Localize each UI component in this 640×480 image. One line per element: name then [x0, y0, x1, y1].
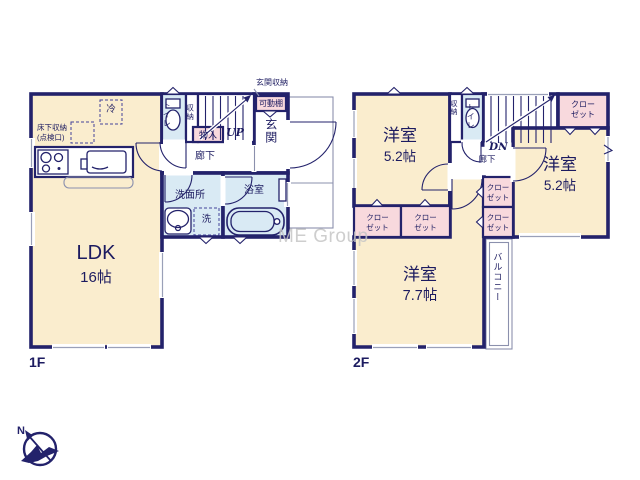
- floor-plan: N 玄関収納 LDK 16帖 冷 床下収納 (点検口) トイレ 収納 物入 UP…: [0, 0, 640, 480]
- label-storage-2f: 収納: [449, 100, 457, 136]
- label-underfloor: 床下収納 (点検口): [37, 123, 67, 143]
- label-room3: 洋室 7.7帖: [379, 265, 461, 304]
- compass-north-label: N: [17, 425, 25, 437]
- label-closet-tr: クローゼット: [558, 100, 608, 121]
- label-monoire: 物入: [193, 130, 223, 140]
- label-toilet-2f: トイレ: [466, 103, 475, 143]
- label-balcony: バルコニー: [492, 252, 502, 338]
- label-stairs-dn: DN: [489, 141, 508, 153]
- label-hallway-1f: 廊下: [190, 151, 220, 163]
- label-toilet-1f: トイレ: [162, 101, 171, 141]
- label-entrance-storage: 玄関収納: [246, 78, 298, 87]
- ldk-name: LDK: [54, 242, 138, 265]
- label-stairs-up: UP: [226, 127, 244, 140]
- washbasin-icon: [165, 208, 191, 234]
- label-entrance: 玄関: [263, 118, 277, 164]
- label-closet-m1: クローゼット: [483, 183, 513, 203]
- label-room2: 洋室 5.2帖: [520, 155, 600, 193]
- label-closet-m2: クローゼット: [483, 213, 513, 233]
- label-washer: 洗: [194, 215, 219, 226]
- watermark: ME Group: [278, 226, 369, 248]
- label-closet-bl2: クローゼット: [401, 213, 450, 233]
- label-hallway-2f: 廊下: [474, 155, 500, 165]
- label-washroom: 洗面所: [168, 190, 212, 202]
- bath-counter: [279, 179, 286, 201]
- label-room1: 洋室 5.2帖: [359, 126, 441, 164]
- label-fridge: 冷: [100, 105, 122, 116]
- label-floor2: 2F: [353, 354, 369, 370]
- ldk-size: 16帖: [54, 269, 138, 286]
- sink-icon: [87, 151, 126, 173]
- label-floor1: 1F: [29, 354, 45, 370]
- label-bathroom: 浴室: [238, 185, 270, 197]
- compass: N: [17, 425, 59, 465]
- label-ldk: LDK 16帖: [54, 242, 138, 286]
- label-movable-shelf: 可動棚: [256, 99, 286, 108]
- entrance-porch: [288, 97, 333, 228]
